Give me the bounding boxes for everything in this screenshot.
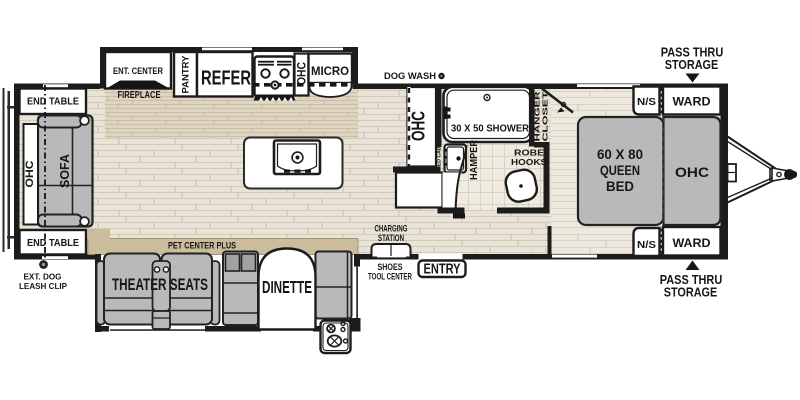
svg-text:30 X 50 SHOWER: 30 X 50 SHOWER (451, 123, 529, 135)
svg-text:HOOKS: HOOKS (511, 157, 547, 167)
svg-text:ENTRY: ENTRY (424, 262, 461, 278)
svg-text:WARD: WARD (673, 97, 711, 109)
svg-text:PET CENTER PLUS: PET CENTER PLUS (168, 241, 236, 252)
svg-text:MED CAB: MED CAB (437, 146, 443, 170)
svg-text:CHARGING: CHARGING (375, 224, 408, 234)
svg-text:THEATER SEATS: THEATER SEATS (112, 276, 208, 294)
svg-text:CLOSET: CLOSET (541, 91, 550, 142)
svg-text:BED: BED (606, 179, 634, 194)
svg-text:STATION: STATION (378, 233, 404, 243)
svg-text:SHOES: SHOES (378, 262, 403, 272)
svg-text:OHC: OHC (675, 164, 709, 180)
svg-text:TOOL CENTER: TOOL CENTER (368, 272, 412, 282)
svg-text:FIREPLACE: FIREPLACE (118, 90, 161, 101)
svg-text:N/S: N/S (637, 239, 656, 251)
svg-text:DOG WASH: DOG WASH (384, 71, 436, 82)
svg-text:ENT. CENTER: ENT. CENTER (113, 66, 163, 77)
svg-text:END TABLE: END TABLE (27, 96, 79, 108)
svg-text:QUEEN: QUEEN (600, 163, 640, 178)
svg-text:ROBE: ROBE (514, 148, 544, 158)
svg-text:STORAGE: STORAGE (664, 286, 718, 300)
svg-text:PANTRY: PANTRY (181, 55, 192, 94)
svg-text:DINETTE: DINETTE (262, 277, 312, 297)
svg-text:SOFA: SOFA (58, 154, 72, 188)
svg-text:HAMPER: HAMPER (468, 140, 480, 180)
svg-text:EXT. DOG: EXT. DOG (24, 272, 62, 282)
svg-text:MICRO: MICRO (311, 66, 349, 78)
svg-text:60 X 80: 60 X 80 (597, 147, 643, 162)
svg-text:N/S: N/S (637, 96, 656, 108)
svg-text:STORAGE: STORAGE (665, 58, 719, 72)
svg-text:OHC: OHC (24, 160, 36, 187)
svg-text:OHC: OHC (297, 62, 309, 85)
svg-text:END TABLE: END TABLE (27, 237, 79, 249)
svg-text:LEASH CLIP: LEASH CLIP (19, 281, 67, 291)
svg-text:REFER: REFER (201, 67, 251, 90)
svg-text:OHC: OHC (409, 111, 429, 141)
svg-text:WARD: WARD (673, 238, 711, 250)
